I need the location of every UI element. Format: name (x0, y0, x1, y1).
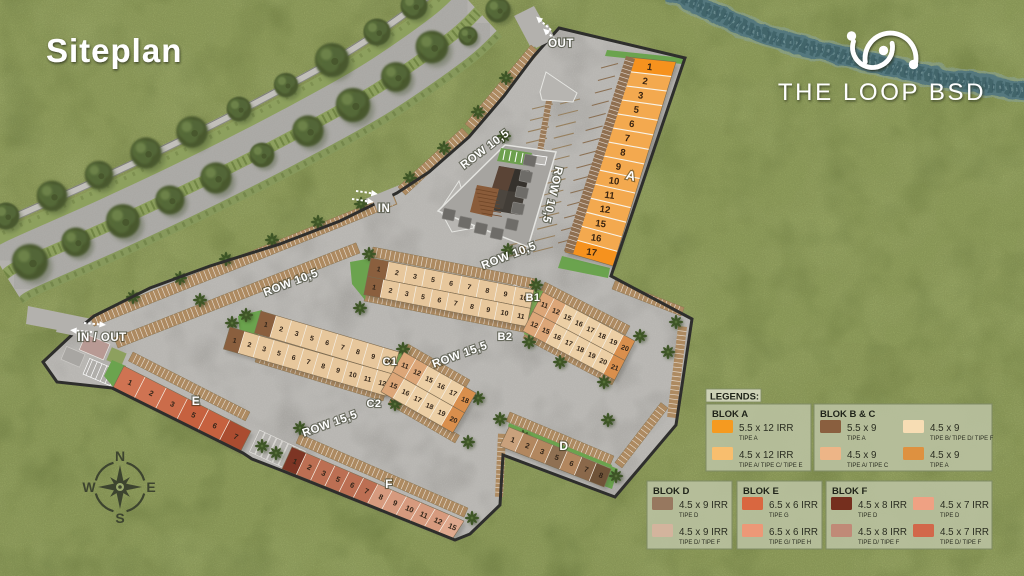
svg-text:OUT: OUT (548, 38, 574, 50)
svg-text:B2: B2 (497, 331, 512, 343)
svg-text:4.5 x 7 IRR: 4.5 x 7 IRR (940, 527, 989, 538)
svg-text:5.5 x 12 IRR: 5.5 x 12 IRR (739, 423, 793, 434)
svg-text:E: E (146, 479, 155, 495)
svg-text:TIPE A: TIPE A (739, 436, 758, 442)
svg-text:TIPE D: TIPE D (679, 513, 699, 519)
svg-text:BLOK E: BLOK E (743, 486, 779, 497)
svg-text:TIPE B/ TIPE D/ TIPE F: TIPE B/ TIPE D/ TIPE F (930, 436, 994, 442)
svg-text:D: D (559, 439, 568, 453)
svg-text:TIPE D/ TIPE F: TIPE D/ TIPE F (940, 540, 982, 546)
svg-text:IN: IN (378, 203, 391, 215)
svg-text:4.5 x 7 IRR: 4.5 x 7 IRR (940, 500, 989, 511)
svg-text:BLOK B & C: BLOK B & C (820, 409, 876, 420)
svg-text:12: 12 (599, 204, 611, 216)
svg-text:TIPE A/ TIPE C/ TIPE E: TIPE A/ TIPE C/ TIPE E (739, 463, 802, 469)
svg-text:BLOK D: BLOK D (653, 486, 690, 497)
svg-text:4.5 x 9 IRR: 4.5 x 9 IRR (679, 527, 728, 538)
svg-text:TIPE D: TIPE D (858, 513, 878, 519)
svg-text:4.5 x 9 IRR: 4.5 x 9 IRR (679, 500, 728, 511)
svg-text:TIPE D/ TIPE F: TIPE D/ TIPE F (679, 540, 721, 546)
svg-text:5.5 x 9: 5.5 x 9 (847, 423, 876, 434)
svg-text:E: E (192, 394, 201, 408)
svg-text:4.5 x 9: 4.5 x 9 (930, 450, 959, 461)
svg-text:Siteplan: Siteplan (46, 32, 182, 69)
svg-text:THE LOOP BSD: THE LOOP BSD (778, 79, 986, 106)
svg-text:6.5 x 6 IRR: 6.5 x 6 IRR (769, 527, 818, 538)
svg-text:F: F (385, 477, 393, 491)
svg-text:4.5 x 9: 4.5 x 9 (930, 423, 959, 434)
svg-text:4.5 x 9: 4.5 x 9 (847, 450, 876, 461)
svg-text:N: N (115, 448, 125, 464)
svg-text:BLOK F: BLOK F (832, 486, 868, 497)
svg-text:C2: C2 (366, 398, 381, 410)
svg-text:4.5 x 8 IRR: 4.5 x 8 IRR (858, 527, 907, 538)
svg-text:17: 17 (586, 247, 598, 259)
svg-text:LEGENDS:: LEGENDS: (710, 392, 759, 403)
svg-text:TIPE G/ TIPE H: TIPE G/ TIPE H (769, 540, 811, 546)
svg-text:16: 16 (590, 232, 602, 244)
svg-text:TIPE G: TIPE G (769, 513, 789, 519)
svg-text:4.5 x 12 IRR: 4.5 x 12 IRR (739, 450, 793, 461)
svg-text:10: 10 (608, 175, 620, 187)
svg-text:S: S (115, 510, 124, 526)
svg-text:W: W (82, 479, 96, 495)
svg-text:4.5 x 8 IRR: 4.5 x 8 IRR (858, 500, 907, 511)
svg-text:TIPE D/ TIPE F: TIPE D/ TIPE F (858, 540, 900, 546)
svg-text:B1: B1 (525, 292, 540, 304)
svg-text:TIPE A/ TIPE C: TIPE A/ TIPE C (847, 463, 889, 469)
svg-text:C1: C1 (382, 356, 397, 368)
svg-text:TIPE A: TIPE A (930, 463, 949, 469)
svg-text:TIPE D: TIPE D (940, 513, 960, 519)
svg-text:TIPE A: TIPE A (847, 436, 866, 442)
svg-text:IN / OUT: IN / OUT (77, 332, 126, 344)
svg-text:BLOK A: BLOK A (712, 409, 748, 420)
svg-text:6.5 x 6 IRR: 6.5 x 6 IRR (769, 500, 818, 511)
